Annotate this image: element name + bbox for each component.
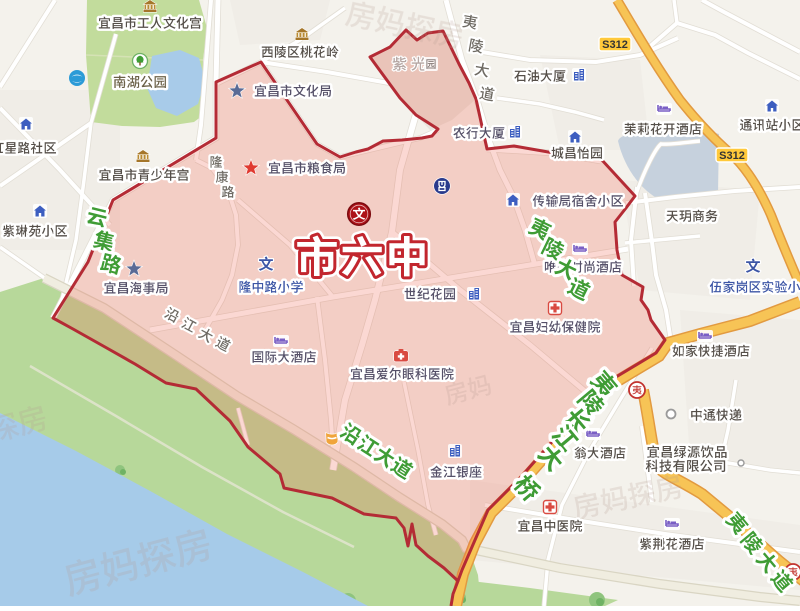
svg-text:S312: S312 [602, 39, 628, 51]
svg-text:S312: S312 [719, 150, 745, 162]
